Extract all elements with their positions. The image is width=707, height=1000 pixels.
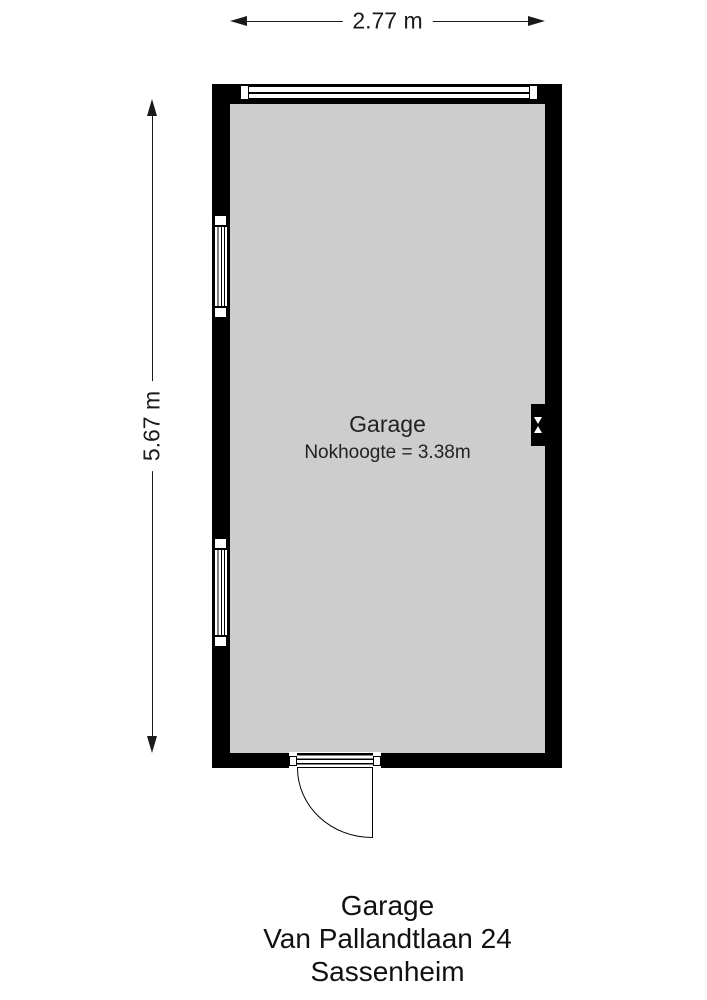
room-ridge-height: Nokhoogte = 3.38m bbox=[230, 441, 545, 465]
property-type: Garage bbox=[212, 889, 563, 922]
door-swing-arc bbox=[297, 768, 372, 838]
window-left-upper bbox=[214, 215, 227, 318]
window-glass bbox=[249, 85, 529, 100]
floor-plan: Garage Nokhoogte = 3.38m bbox=[0, 0, 707, 1000]
room-label-group: Garage Nokhoogte = 3.38m bbox=[230, 410, 545, 465]
window-frame-cap bbox=[529, 85, 538, 100]
door-frame-cap bbox=[289, 756, 297, 766]
caption: Garage Van Pallandtlaan 24 Sassenheim bbox=[212, 889, 563, 988]
window-glass bbox=[214, 226, 227, 307]
window-glass bbox=[214, 549, 227, 636]
window-frame-cap bbox=[214, 307, 227, 318]
window-top bbox=[240, 85, 538, 100]
property-city: Sassenheim bbox=[212, 955, 563, 988]
door-frame-cap bbox=[373, 756, 381, 766]
room-name: Garage bbox=[230, 410, 545, 438]
window-frame-cap bbox=[214, 636, 227, 647]
window-frame-cap bbox=[214, 538, 227, 549]
property-address: Van Pallandtlaan 24 bbox=[212, 922, 563, 955]
floorplan-page: 2.77 m 5.67 m bbox=[0, 0, 707, 1000]
window-frame-cap bbox=[214, 215, 227, 226]
door-panel-glass bbox=[297, 753, 373, 768]
door-leaf bbox=[372, 768, 373, 838]
window-frame-cap bbox=[240, 85, 249, 100]
window-left-lower bbox=[214, 538, 227, 647]
door-panel bbox=[289, 753, 381, 768]
